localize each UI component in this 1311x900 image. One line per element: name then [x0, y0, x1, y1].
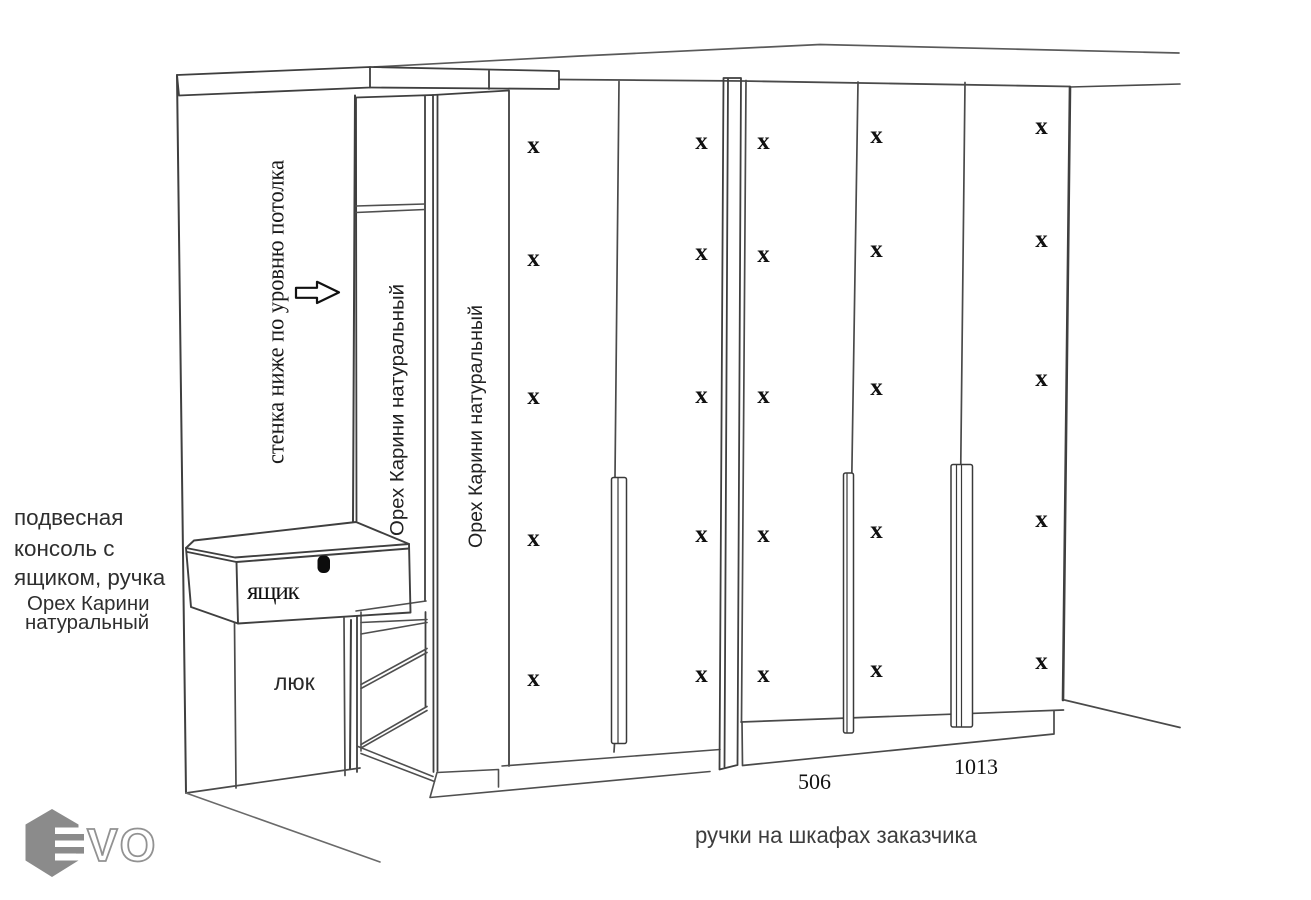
svg-text:x: x: [870, 517, 883, 544]
svg-text:ручки на шкафах заказчика: ручки на шкафах заказчика: [695, 822, 977, 848]
svg-text:подвесная: подвесная: [14, 505, 123, 530]
svg-text:x: x: [1035, 226, 1048, 253]
svg-text:1013: 1013: [954, 754, 998, 779]
svg-text:x: x: [870, 374, 883, 401]
svg-text:x: x: [757, 521, 770, 548]
svg-text:x: x: [870, 122, 883, 149]
svg-text:x: x: [757, 128, 770, 155]
svg-text:x: x: [695, 128, 708, 155]
svg-text:506: 506: [798, 769, 831, 794]
svg-text:x: x: [695, 382, 708, 409]
svg-text:x: x: [1035, 506, 1048, 533]
svg-text:x: x: [870, 656, 883, 683]
svg-text:консоль с: консоль с: [14, 536, 114, 561]
svg-text:x: x: [870, 236, 883, 263]
svg-text:x: x: [757, 661, 770, 688]
svg-text:x: x: [757, 241, 770, 268]
svg-text:x: x: [695, 239, 708, 266]
svg-text:x: x: [527, 383, 540, 410]
svg-text:люк: люк: [274, 669, 316, 695]
svg-text:x: x: [1035, 648, 1048, 675]
svg-text:x: x: [527, 132, 540, 159]
svg-text:Орех Карини натуральный: Орех Карини натуральный: [388, 284, 409, 536]
svg-text:x: x: [527, 245, 540, 272]
svg-text:VO: VO: [87, 819, 157, 871]
svg-text:Орех Карини натуральный: Орех Карини натуральный: [466, 305, 487, 548]
svg-text:стенка ниже по уровню потолка: стенка ниже по уровню потолка: [264, 160, 290, 464]
svg-text:x: x: [1035, 113, 1048, 140]
svg-text:x: x: [527, 525, 540, 552]
svg-text:x: x: [695, 661, 708, 688]
svg-text:ящик: ящик: [247, 578, 301, 605]
svg-text:x: x: [527, 665, 540, 692]
svg-text:x: x: [757, 382, 770, 409]
svg-text:x: x: [695, 521, 708, 548]
svg-text:x: x: [1035, 365, 1048, 392]
svg-text:ящиком, ручка: ящиком, ручка: [14, 565, 166, 590]
svg-text:натуральный: натуральный: [25, 612, 149, 634]
